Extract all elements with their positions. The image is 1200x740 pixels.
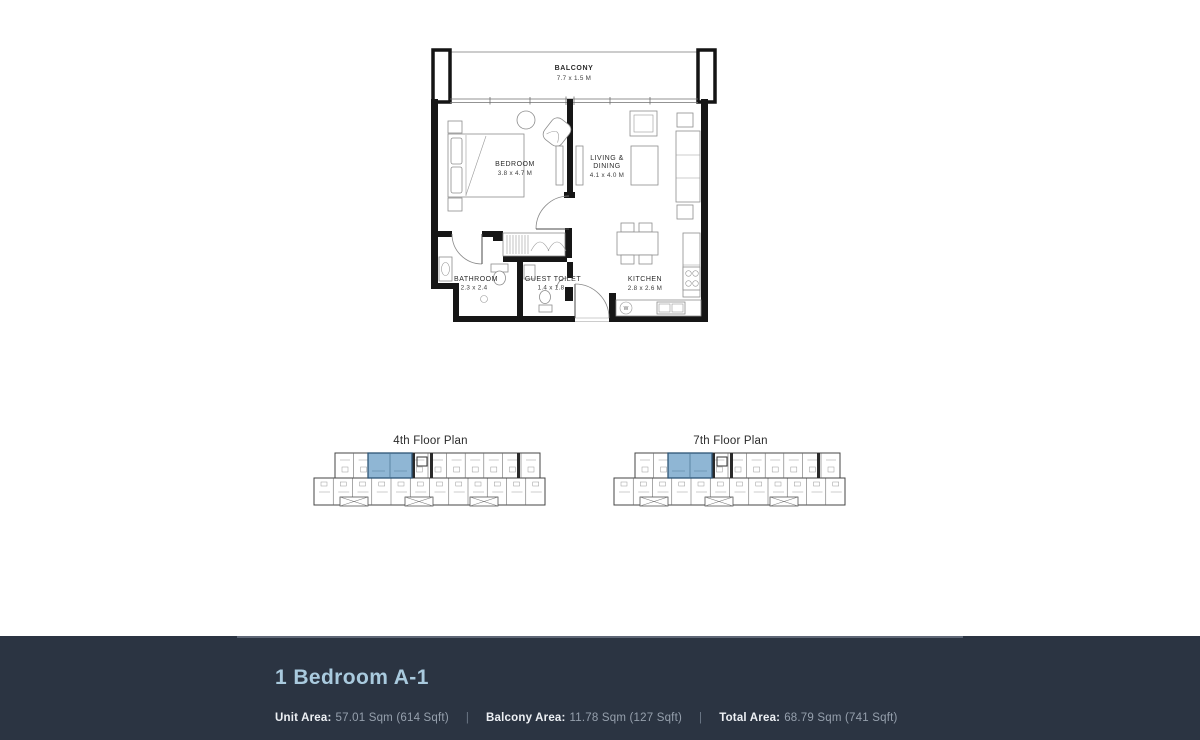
pillow [451,167,462,193]
sofa [676,131,700,202]
bedroom-dims: 3.8 x 4.7 M [498,170,532,177]
entrance-door [575,284,609,322]
tv-panel [576,146,583,185]
floor-thumbnail-4th[interactable]: 4th Floor Plan [313,435,548,513]
nightstand [448,121,462,133]
dining-chair [639,223,652,232]
bathroom-sink [439,257,452,281]
pillow [451,138,462,164]
guest-toilet-dims: 1.4 x 1.8 [538,285,565,292]
kitchen-label: KITCHEN [628,276,662,283]
dining-chair [621,255,634,264]
floor-thumbnail-svg [613,451,848,513]
window-line [450,97,698,106]
dining-table [617,232,658,255]
dining-chair [639,255,652,264]
floor-thumbnail-4th-label: 4th Floor Plan [313,435,548,447]
floor-thumbnail-7th-label: 7th Floor Plan [613,435,848,447]
bathroom-dims: 2.3 x 2.4 [461,285,488,292]
bathroom-area: BATHROOM 2.3 x 2.4 [439,234,508,303]
balcony-area: BALCONY 7.7 x 1.5 M [433,50,715,102]
unit-area-label: Unit Area: [275,712,332,724]
unit-title: 1 Bedroom A-1 [275,666,429,690]
bathroom-label: BATHROOM [454,276,498,283]
stove [683,267,700,290]
floor-thumbnail-7th[interactable]: 7th Floor Plan [613,435,848,513]
floor-thumbnail-svg [313,451,548,513]
living-label-line1: LIVING & [590,155,624,162]
side-table [677,113,693,127]
living-label-line2: DINING [593,163,621,170]
wardrobe [503,233,566,256]
column-right [698,50,715,102]
balcony-area-label: Balcony Area: [486,712,566,724]
bedroom-door-arc [536,196,569,229]
unit-floor-plan-drawing: BALCONY 7.7 x 1.5 M [420,35,720,335]
footer: 1 Bedroom A-1 Unit Area:57.01 Sqm (614 S… [0,636,1200,740]
bedroom-area: BEDROOM 3.8 x 4.7 M [448,111,583,229]
living-dims: 4.1 x 4.0 M [590,172,624,179]
column-left [433,50,450,102]
tv-panel [556,146,563,185]
separator: | [699,712,702,724]
unit-floor-plan: BALCONY 7.7 x 1.5 M [420,35,720,335]
round-table [517,111,535,129]
toilet [540,291,551,304]
dining-chair [621,223,634,232]
total-area-value: 68.79 Sqm (741 Sqft) [784,712,897,724]
balcony-area-value: 11.78 Sqm (127 Sqft) [570,712,682,724]
separator: | [466,712,469,724]
side-table [677,205,693,219]
balcony-label: BALCONY [555,65,594,72]
guest-toilet-label: GUEST TOILET [525,276,581,283]
kitchen-dims: 2.8 x 2.6 M [628,285,662,292]
washer-label: W [624,306,629,312]
balcony-dims: 7.7 x 1.5 M [557,75,591,82]
coffee-table [631,146,658,185]
unit-area-value: 57.01 Sqm (614 Sqft) [336,712,449,724]
footer-top-divider [237,636,963,638]
nightstand [448,198,462,211]
area-summary: Unit Area:57.01 Sqm (614 Sqft)|Balcony A… [275,712,898,724]
bedroom-label: BEDROOM [495,161,535,168]
entrance-door-arc [575,284,609,318]
bathroom-door-arc [452,234,482,264]
total-area-label: Total Area: [719,712,780,724]
shower-head [481,296,488,303]
